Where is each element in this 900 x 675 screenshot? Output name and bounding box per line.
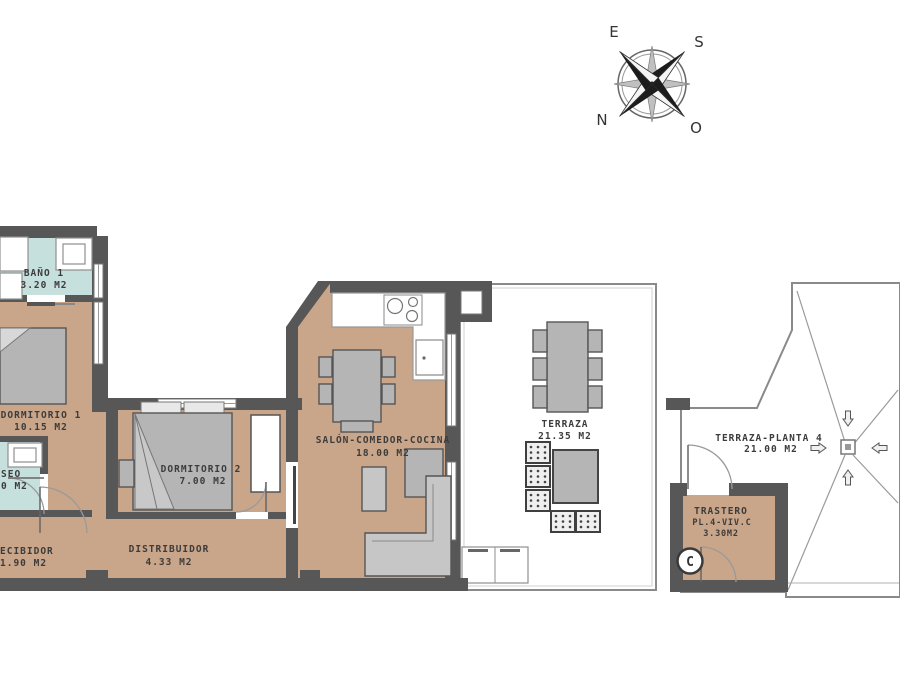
wall-segment (666, 398, 690, 410)
door-opening (27, 295, 65, 302)
outdoor-chair (588, 386, 602, 408)
wall-segment (0, 510, 92, 517)
slope-arrow-down-icon (843, 411, 853, 426)
planter-pot (526, 490, 550, 511)
dining-chair (319, 384, 332, 404)
nightstand (119, 460, 134, 487)
bench-detail (468, 549, 488, 552)
unit-marker-letter: C (686, 555, 694, 570)
room-area-trastero: 3.30M2 (703, 529, 739, 539)
room-area-distribuidor: 4.33 M2 (145, 557, 192, 568)
sink-faucet (422, 356, 425, 359)
planter-pot (576, 511, 600, 532)
slope-arrow-up-icon (843, 470, 853, 485)
wall-segment (106, 398, 118, 512)
outdoor-chair (533, 386, 547, 408)
compass-rose: E S N O (596, 23, 703, 137)
sliding-door-leaf (293, 466, 296, 524)
door-opening (40, 474, 48, 512)
wall-segment (0, 578, 468, 591)
slope-arrow-right-icon (811, 443, 826, 453)
wall-pillar (86, 570, 108, 578)
wall-segment (670, 580, 788, 592)
burner (388, 299, 403, 314)
aseo-sink-basin (14, 448, 36, 462)
kitchen-sink (416, 340, 443, 375)
burner (409, 298, 418, 307)
wall-segment (330, 281, 462, 293)
compass-label-s: S (694, 33, 704, 51)
room-label-salon: SALÓN-COMEDOR-COCINA (316, 434, 450, 446)
compass-label-e: E (609, 23, 618, 41)
room-label-trastero: TRASTERO (694, 506, 748, 517)
planter-pot (526, 466, 550, 487)
roof-drain-grate (845, 444, 851, 450)
bench-detail (500, 549, 520, 552)
wall-segment (670, 483, 687, 496)
room-label-recibidor: ECIBIDOR (0, 546, 54, 557)
outdoor-chair (588, 358, 602, 380)
dining-chair (382, 384, 395, 404)
room-unit-trastero: PL.4-VIV.C (692, 518, 751, 528)
sliding-door-track (55, 303, 75, 305)
wall-segment (670, 496, 683, 592)
door-opening (687, 484, 729, 495)
outdoor-chair (533, 330, 547, 352)
door-opening (236, 512, 268, 519)
room-label-dormitorio2: DORMITORIO 2 (161, 464, 242, 475)
floor-plan-drawing: C E S N O BAÑO 1 3.20 M2 DORMITORIO 1 10… (0, 0, 900, 675)
room-label-dormitorio1: DORMITORIO 1 (1, 410, 82, 421)
roof-slope-line (797, 291, 845, 442)
room-area-terraza-planta4: 21.00 M2 (744, 444, 798, 455)
slope-arrow-left-icon (872, 443, 887, 453)
room-label-distribuidor: DISTRIBUIDOR (129, 544, 210, 555)
coffee-table (362, 467, 386, 511)
pillow (141, 402, 181, 413)
bath-cabinet (0, 273, 22, 299)
wall-segment (0, 226, 97, 238)
wall-segment (775, 496, 788, 592)
wall-niche (461, 291, 482, 314)
wall-segment (0, 436, 47, 442)
room-area-dormitorio1: 10.15 M2 (14, 422, 68, 433)
outdoor-side-table (553, 450, 598, 503)
door-arc (688, 445, 732, 489)
roof-slope-line (788, 455, 845, 590)
wall-segment (729, 483, 788, 496)
roof-slope-line (853, 390, 898, 445)
wall-segment (286, 327, 298, 580)
compass-center (650, 82, 655, 87)
bedroom1-furniture (0, 328, 66, 404)
room-area-aseo: 0 M2 (1, 481, 28, 492)
room-area-bano1: 3.20 M2 (20, 280, 67, 291)
dining-chair (319, 357, 332, 377)
outdoor-chair (588, 330, 602, 352)
room-label-bano1: BAÑO 1 (24, 268, 64, 279)
compass-label-o: O (690, 119, 702, 137)
outdoor-table (547, 322, 588, 412)
room-area-recibidor: 1.90 M2 (0, 558, 47, 569)
dining-chair (341, 421, 373, 432)
dining-table (333, 350, 381, 422)
room-label-terraza-planta4: TERRAZA-PLANTA 4 (715, 433, 823, 444)
burner (407, 311, 418, 322)
planter-pot (551, 511, 575, 532)
sliding-door-leaf (27, 302, 55, 306)
room-label-terraza: TERRAZA (541, 419, 588, 430)
roof-slope-line (853, 455, 898, 503)
toilet-tank (63, 244, 85, 264)
door-opening (286, 462, 298, 528)
room-area-terraza: 21.35 M2 (538, 431, 592, 442)
pillow (184, 402, 224, 413)
room-area-salon: 18.00 M2 (356, 448, 410, 459)
compass-label-n: N (596, 111, 607, 129)
outdoor-chair (533, 358, 547, 380)
wardrobe (251, 415, 280, 492)
room-label-aseo: SEO (1, 469, 21, 480)
bathtub (0, 237, 28, 271)
wall-pillar (300, 570, 320, 578)
room-area-dormitorio2: 7.00 M2 (179, 476, 226, 487)
dining-chair (382, 357, 395, 377)
planter-pot (526, 442, 550, 463)
floor-plan-page: C E S N O BAÑO 1 3.20 M2 DORMITORIO 1 10… (0, 0, 900, 675)
